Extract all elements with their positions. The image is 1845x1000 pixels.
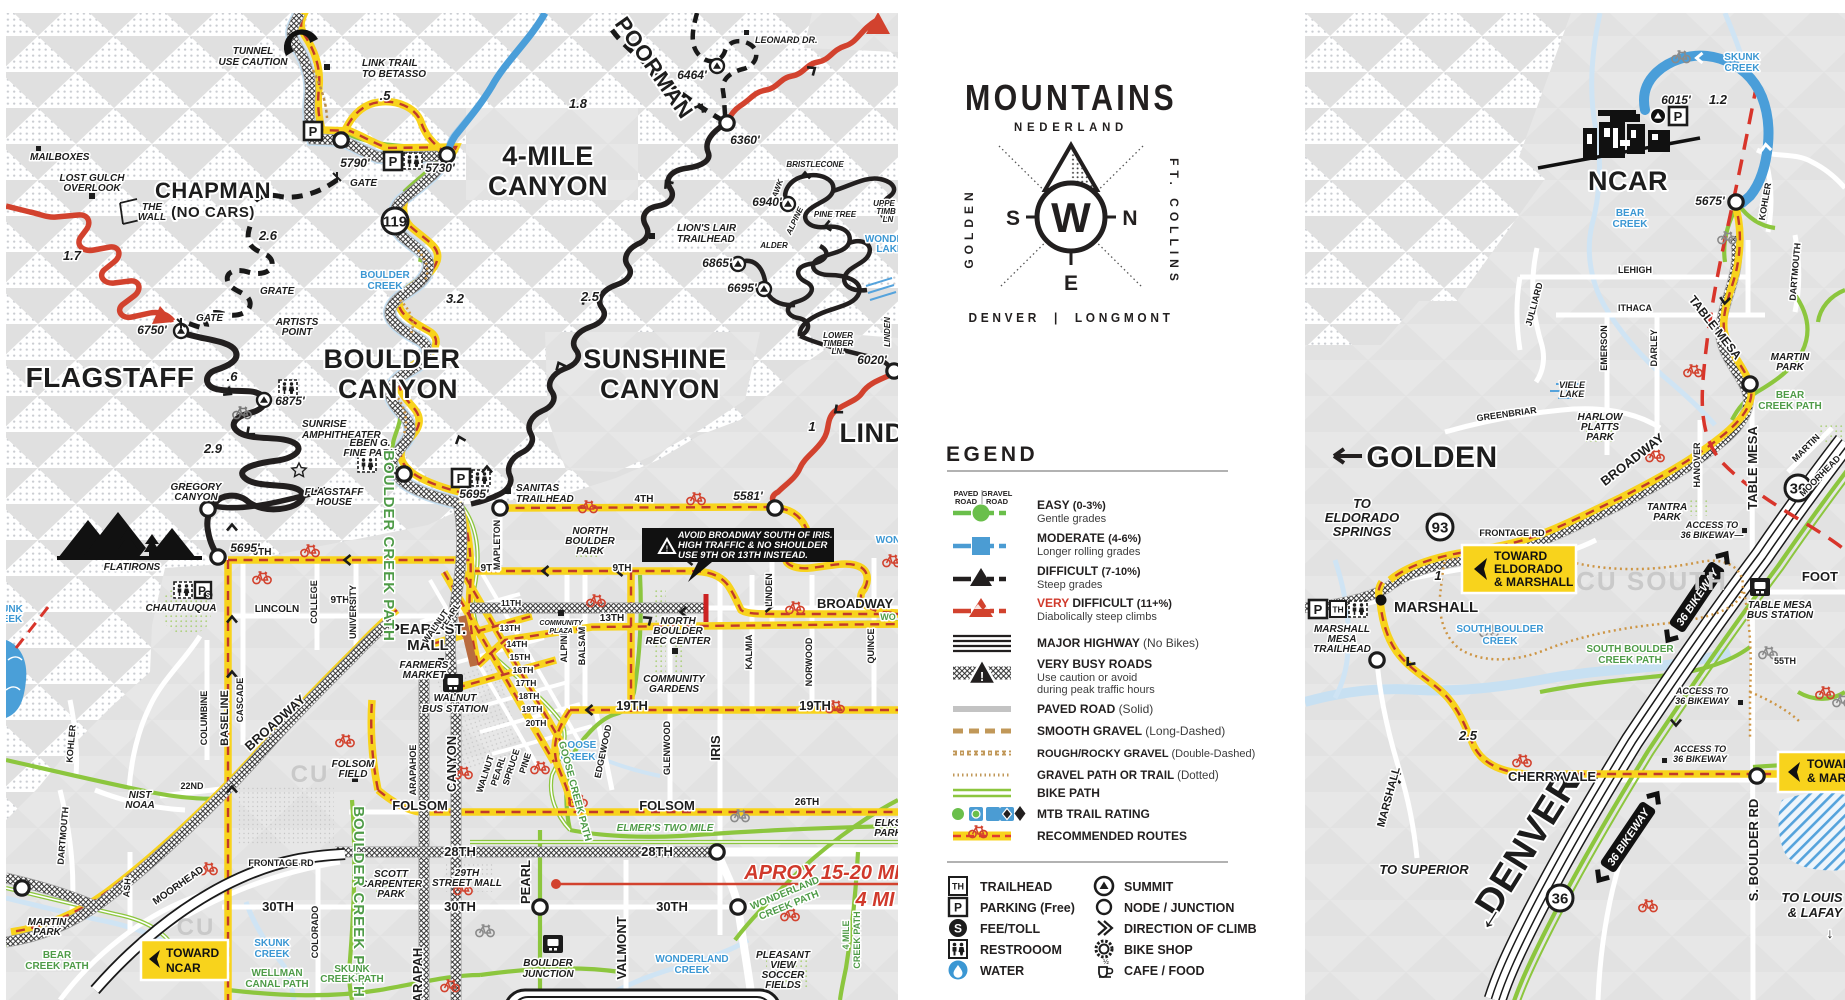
svg-text:PARK: PARK [576, 546, 604, 557]
svg-text:LION'S LAIR: LION'S LAIR [677, 223, 737, 234]
svg-text:N: N [1122, 207, 1137, 230]
svg-text:9TH: 9TH [331, 595, 350, 606]
svg-text:19TH: 19TH [799, 698, 831, 713]
svg-text:ELMER'S TWO MILE: ELMER'S TWO MILE [617, 823, 714, 834]
svg-text:FLATIRONS: FLATIRONS [104, 562, 161, 573]
svg-text:CREEK PATH: CREEK PATH [320, 974, 384, 985]
svg-text:VERY BUSY ROADS: VERY BUSY ROADS [1037, 657, 1152, 671]
svg-text:26TH: 26TH [795, 797, 819, 808]
svg-text:TRAILHEAD: TRAILHEAD [1313, 644, 1371, 655]
svg-text:28TH: 28TH [444, 844, 476, 859]
svg-text:MOUNTAINS: MOUNTAINS [965, 77, 1177, 118]
svg-text:ELDORADO: ELDORADO [1494, 562, 1563, 576]
svg-text:WALNUT: WALNUT [434, 693, 478, 704]
svg-text:SOUTH BOULDER: SOUTH BOULDER [1456, 624, 1544, 635]
svg-text:BEAR: BEAR [1776, 390, 1805, 401]
svg-text:SMOOTH GRAVEL (Long-Dashed): SMOOTH GRAVEL (Long-Dashed) [1037, 724, 1225, 738]
svg-text:14TH: 14TH [507, 639, 528, 649]
svg-text:LEONARD DR.: LEONARD DR. [755, 35, 818, 45]
svg-text:SUMMIT: SUMMIT [1124, 880, 1174, 894]
svg-text:POINT: POINT [282, 327, 313, 338]
svg-text:6865': 6865' [702, 256, 733, 270]
svg-text:↓: ↓ [1827, 925, 1834, 941]
svg-text:Longer rolling grades: Longer rolling grades [1037, 546, 1141, 558]
svg-text:LN.: LN. [832, 347, 845, 356]
svg-text:ITHACA: ITHACA [1618, 303, 1652, 313]
svg-text:& LAFAY: & LAFAY [1788, 905, 1844, 920]
svg-text:½: ½ [1103, 958, 1109, 966]
svg-text:GRAVEL PATH OR TRAIL (Dotted): GRAVEL PATH OR TRAIL (Dotted) [1037, 770, 1219, 782]
svg-text:MTB TRAIL RATING: MTB TRAIL RATING [1037, 807, 1150, 821]
svg-text:5695': 5695' [230, 541, 261, 555]
svg-text:5790': 5790' [340, 156, 371, 170]
svg-text:3.2: 3.2 [446, 291, 465, 306]
svg-text:36: 36 [1552, 891, 1569, 908]
svg-text:TO BETASSO: TO BETASSO [362, 69, 426, 80]
svg-text:TOWARD: TOWARD [166, 946, 219, 960]
svg-text:6360': 6360' [730, 133, 761, 147]
svg-text:ASH: ASH [121, 878, 133, 898]
svg-text:SOUTH BOULDER: SOUTH BOULDER [1586, 644, 1674, 655]
svg-text:FRONTAGE RD: FRONTAGE RD [1479, 528, 1545, 538]
svg-text:Gentle grades: Gentle grades [1037, 513, 1107, 525]
svg-text:PLAZA: PLAZA [549, 628, 572, 635]
svg-text:WONDERLAND: WONDERLAND [655, 954, 728, 965]
svg-text:36 BIKEWAY: 36 BIKEWAY [1675, 696, 1730, 706]
svg-text:CANYON: CANYON [338, 374, 458, 404]
svg-text:MAJOR HIGHWAY (No Bikes): MAJOR HIGHWAY (No Bikes) [1037, 636, 1199, 650]
svg-text:BOULDER: BOULDER [324, 344, 461, 374]
svg-text:BOULDER: BOULDER [360, 270, 410, 281]
svg-text:13TH: 13TH [600, 613, 624, 624]
svg-text:MARSHALL: MARSHALL [1394, 599, 1478, 616]
svg-text:CASCADE: CASCADE [235, 678, 245, 723]
svg-text:FOLSOM: FOLSOM [639, 798, 695, 813]
svg-text:4TH: 4TH [635, 494, 654, 505]
svg-text:16TH: 16TH [513, 665, 534, 675]
svg-text:6020': 6020' [857, 353, 888, 367]
svg-text:LINCOLN: LINCOLN [255, 604, 299, 615]
svg-text:VALMONT: VALMONT [614, 916, 629, 979]
svg-text:IRIS: IRIS [708, 735, 723, 761]
svg-text:QUINCE: QUINCE [866, 628, 876, 663]
svg-text:BOULDER CREEK PATH: BOULDER CREEK PATH [380, 450, 397, 642]
svg-text:PARKING (Free): PARKING (Free) [980, 901, 1075, 915]
svg-text:APROX 15-20 MI: APROX 15-20 MI [743, 862, 900, 884]
svg-text:(NO CARS): (NO CARS) [171, 204, 255, 221]
svg-text:GRATE: GRATE [260, 286, 295, 297]
svg-text:PARK: PARK [377, 889, 405, 900]
svg-text:FIELD: FIELD [339, 769, 368, 780]
svg-text:NCAR: NCAR [166, 961, 201, 975]
svg-text:ELDORADO: ELDORADO [1325, 510, 1399, 525]
svg-text:5730': 5730' [425, 161, 456, 175]
svg-text:GLENWOOD: GLENWOOD [662, 721, 672, 775]
svg-text:PARK: PARK [1653, 512, 1681, 523]
svg-text:REC CENTER: REC CENTER [645, 636, 711, 647]
svg-text:1.2: 1.2 [1709, 92, 1728, 107]
svg-text:36 BIKEWAY: 36 BIKEWAY [1673, 754, 1728, 764]
svg-text:BEAR: BEAR [1616, 208, 1645, 219]
svg-text:TH: TH [952, 882, 964, 892]
svg-text:93: 93 [1432, 520, 1449, 537]
svg-text:15TH: 15TH [510, 652, 531, 662]
svg-text:S. BOULDER RD: S. BOULDER RD [1746, 799, 1761, 902]
svg-text:SKUNK: SKUNK [254, 938, 290, 949]
svg-text:30TH: 30TH [444, 899, 476, 914]
svg-text:WON: WON [876, 535, 900, 546]
svg-text:VERY DIFFICULT (11+%): VERY DIFFICULT (11+%) [1037, 596, 1172, 610]
svg-text:DIFFICULT (7-10%): DIFFICULT (7-10%) [1037, 564, 1141, 578]
svg-text:EASY (0-3%): EASY (0-3%) [1037, 498, 1106, 512]
svg-text:FIELDS: FIELDS [765, 980, 801, 991]
svg-text:TABLE MESA: TABLE MESA [1745, 426, 1760, 510]
svg-text:LINDEN: LINDEN [764, 573, 774, 607]
svg-text:ROUGH/ROCKY GRAVEL (Double-Das: ROUGH/ROCKY GRAVEL (Double-Dashed) [1037, 748, 1255, 760]
svg-text:NEDERLAND: NEDERLAND [1014, 120, 1128, 134]
svg-text:TRAILHEAD: TRAILHEAD [516, 494, 574, 505]
svg-text:CREEK: CREEK [1724, 63, 1760, 74]
svg-text:CHERRYVALE: CHERRYVALE [1508, 769, 1596, 784]
svg-text:2.6: 2.6 [258, 228, 278, 243]
svg-text:4 MI: 4 MI [855, 889, 895, 911]
svg-text:2.9: 2.9 [203, 441, 223, 456]
svg-text:.5: .5 [380, 88, 392, 103]
svg-text:CU: CU [177, 914, 216, 941]
svg-text:Use caution or avoid: Use caution or avoid [1037, 672, 1137, 684]
svg-text:FLAGSTAFF: FLAGSTAFF [26, 362, 195, 393]
svg-text:W: W [1051, 194, 1091, 241]
svg-text:17TH: 17TH [516, 678, 537, 688]
svg-text:NCAR: NCAR [1588, 166, 1668, 196]
svg-text:GOLDEN: GOLDEN [962, 187, 976, 268]
svg-text:LIND: LIND [840, 418, 905, 448]
svg-text:WATER: WATER [980, 964, 1024, 978]
svg-text:WALL: WALL [138, 212, 166, 223]
svg-text:5581': 5581' [733, 489, 764, 503]
svg-text:GATE: GATE [196, 313, 223, 324]
svg-text:SKUNK: SKUNK [1724, 52, 1760, 63]
svg-text:BASELINE: BASELINE [219, 690, 231, 746]
svg-text:E: E [1064, 272, 1078, 295]
svg-text:MAILBOXES: MAILBOXES [30, 152, 90, 163]
svg-text:13TH: 13TH [500, 623, 521, 633]
svg-text:COMMUNITY: COMMUNITY [539, 620, 583, 627]
svg-text:TO LOUIS: TO LOUIS [1781, 890, 1842, 905]
svg-text:20TH: 20TH [526, 718, 547, 728]
svg-text:ARAPAH: ARAPAH [410, 948, 425, 1000]
svg-text:CANYON: CANYON [174, 492, 218, 503]
svg-text:TO: TO [1353, 496, 1371, 511]
svg-text:ALDER: ALDER [759, 241, 788, 250]
svg-text:18TH: 18TH [519, 691, 540, 701]
svg-text:CREEK PATH: CREEK PATH [1758, 401, 1822, 412]
svg-text:STREET MALL: STREET MALL [432, 878, 502, 889]
svg-text:CREEK: CREEK [254, 949, 290, 960]
svg-text:22ND: 22ND [180, 781, 204, 791]
svg-text:Steep grades: Steep grades [1037, 579, 1103, 591]
svg-text:TOWARD: TOWARD [1494, 549, 1547, 563]
svg-text:1: 1 [808, 419, 815, 434]
svg-text:30TH: 30TH [262, 899, 294, 914]
svg-text:GATE: GATE [350, 178, 377, 189]
svg-text:BUS STATION: BUS STATION [1747, 610, 1814, 621]
svg-text:CAFE / FOOD: CAFE / FOOD [1124, 964, 1205, 978]
svg-text:2.5: 2.5 [1458, 728, 1478, 743]
svg-text:BIKE SHOP: BIKE SHOP [1124, 943, 1193, 957]
svg-text:CU SOUTH: CU SOUTH [1576, 566, 1728, 596]
svg-text:FEE/TOLL: FEE/TOLL [980, 922, 1041, 936]
svg-text:MARKET: MARKET [403, 670, 447, 681]
svg-text:SUNSHINE: SUNSHINE [583, 344, 727, 374]
svg-text:CREEK PATH: CREEK PATH [1598, 655, 1662, 666]
svg-text:CHAPMAN: CHAPMAN [155, 178, 271, 203]
svg-text:BEAR: BEAR [43, 950, 72, 961]
svg-text:!: ! [666, 545, 669, 554]
svg-text:1: 1 [1434, 568, 1441, 583]
svg-text:2.5: 2.5 [580, 289, 600, 304]
svg-text:SANITAS: SANITAS [516, 483, 559, 494]
svg-text:GARDENS: GARDENS [649, 684, 699, 695]
svg-text:LN: LN [883, 215, 894, 224]
svg-text:COLLEGE: COLLEGE [309, 580, 319, 624]
svg-text:1.8: 1.8 [569, 96, 588, 111]
svg-text:ACCESS TO: ACCESS TO [1685, 520, 1738, 530]
svg-text:TOWAR: TOWAR [1807, 757, 1845, 771]
svg-text:30TH: 30TH [656, 899, 688, 914]
svg-text:HANOVER: HANOVER [1692, 442, 1702, 488]
svg-text:CREEK PATH: CREEK PATH [25, 961, 89, 972]
svg-text:6015': 6015' [1661, 93, 1692, 107]
svg-text:11TH: 11TH [501, 598, 521, 608]
svg-text:4-MILE: 4-MILE [502, 141, 594, 171]
svg-text:EGEND: EGEND [946, 443, 1038, 466]
svg-text:FOOT: FOOT [1802, 569, 1838, 584]
svg-text:TH: TH [1332, 605, 1343, 615]
svg-text:PARK: PARK [1776, 362, 1804, 373]
svg-text:36 BIKEWAY—: 36 BIKEWAY— [1681, 530, 1745, 540]
svg-text:5675': 5675' [1695, 194, 1726, 208]
svg-text:.6: .6 [227, 369, 239, 384]
svg-text:CREEK: CREEK [674, 965, 710, 976]
svg-text:WO: WO [880, 612, 896, 622]
svg-text:during peak traffic hours: during peak traffic hours [1037, 684, 1155, 696]
svg-text:CHAUTAUQUA: CHAUTAUQUA [146, 603, 217, 614]
svg-text:1.7: 1.7 [63, 248, 82, 263]
svg-text:FOLSOM: FOLSOM [392, 798, 448, 813]
svg-text:CANYON: CANYON [488, 171, 608, 201]
svg-text:PARK: PARK [33, 927, 61, 938]
svg-text:RESTROOOM: RESTROOOM [980, 943, 1062, 957]
svg-text:LEHIGH: LEHIGH [1618, 265, 1652, 275]
svg-text:CANAL PATH: CANAL PATH [245, 979, 308, 990]
svg-text:BROADWAY: BROADWAY [817, 596, 893, 611]
svg-text:119: 119 [383, 214, 407, 231]
svg-text:ACCESS TO: ACCESS TO [1675, 686, 1728, 696]
svg-text:WELLMAN: WELLMAN [251, 968, 302, 979]
svg-text:HOUSE: HOUSE [316, 497, 352, 508]
svg-text:6875': 6875' [275, 394, 306, 408]
svg-text:& MAR: & MAR [1807, 771, 1845, 785]
svg-text:USE CAUTION: USE CAUTION [219, 57, 289, 68]
svg-text:TO SUPERIOR: TO SUPERIOR [1379, 862, 1469, 877]
svg-text:NOAA: NOAA [125, 800, 154, 811]
svg-text:CANYON: CANYON [600, 374, 720, 404]
svg-text:6464': 6464' [677, 68, 708, 82]
svg-text:& MARSHALL: & MARSHALL [1494, 575, 1573, 589]
svg-text:LINK TRAIL: LINK TRAIL [362, 58, 418, 69]
svg-text:Diabolically steep climbs: Diabolically steep climbs [1037, 611, 1157, 623]
svg-text:6750': 6750' [137, 323, 168, 337]
svg-text:MAPLETON: MAPLETON [492, 520, 502, 570]
svg-text:SPRINGS: SPRINGS [1333, 524, 1392, 539]
svg-text:ACCESS TO: ACCESS TO [1673, 744, 1726, 754]
svg-text:COLORADO: COLORADO [310, 906, 320, 959]
svg-text:PINE TREE: PINE TREE [814, 210, 857, 219]
svg-text:JUNCTION: JUNCTION [522, 969, 574, 980]
svg-text:FRONTAGE RD: FRONTAGE RD [248, 858, 314, 868]
svg-text:28TH: 28TH [641, 844, 673, 859]
svg-text:OVERLOOK: OVERLOOK [63, 183, 121, 194]
svg-text:ROAD: ROAD [986, 497, 1009, 506]
svg-text:4 MILE: 4 MILE [841, 920, 851, 949]
svg-text:$: $ [206, 591, 211, 600]
svg-text:SUNRISE: SUNRISE [302, 419, 347, 430]
svg-text:GOLDEN: GOLDEN [1366, 441, 1497, 474]
svg-text:USE 9TH OR 13TH INSTEAD.: USE 9TH OR 13TH INSTEAD. [678, 550, 808, 561]
svg-text:DENVER | LONGMONT: DENVER | LONGMONT [969, 310, 1174, 325]
svg-text:6695': 6695' [727, 281, 758, 295]
svg-text:55TH: 55TH [1774, 656, 1796, 666]
svg-text:BUS STATION: BUS STATION [422, 704, 489, 715]
svg-text:PARK: PARK [1586, 432, 1614, 443]
svg-text:RECOMMENDED ROUTES: RECOMMENDED ROUTES [1037, 829, 1187, 843]
svg-text:MODERATE (4-6%): MODERATE (4-6%) [1037, 531, 1141, 545]
svg-text:CREEK: CREEK [1612, 219, 1648, 230]
svg-text:UNIVERSITY: UNIVERSITY [348, 585, 358, 639]
svg-text:19TH: 19TH [522, 704, 543, 714]
svg-text:CREEK PATH: CREEK PATH [852, 911, 862, 968]
svg-text:CANYON: CANYON [444, 736, 459, 792]
svg-text:EMERSON: EMERSON [1599, 325, 1609, 371]
svg-text:TRAILHEAD: TRAILHEAD [980, 880, 1052, 894]
svg-text:NORWOOD: NORWOOD [804, 637, 814, 686]
svg-text:COLUMBINE: COLUMBINE [199, 691, 209, 746]
svg-text:BIKE PATH: BIKE PATH [1037, 786, 1100, 800]
svg-text:DIRECTION OF CLIMB: DIRECTION OF CLIMB [1124, 922, 1257, 936]
svg-text:CU: CU [291, 761, 330, 788]
svg-text:BRISTLECONE: BRISTLECONE [786, 160, 844, 169]
svg-text:CREEK: CREEK [1482, 636, 1518, 647]
svg-text:FT. COLLINS: FT. COLLINS [1167, 158, 1181, 286]
svg-text:S: S [1006, 207, 1020, 230]
svg-text:!: ! [980, 669, 984, 684]
svg-text:ARAPAHOE: ARAPAHOE [408, 745, 418, 796]
svg-text:BALSAM: BALSAM [577, 627, 587, 666]
svg-text:DARLEY: DARLEY [1649, 329, 1659, 366]
svg-text:KALMIA: KALMIA [744, 634, 754, 669]
svg-text:6940': 6940' [752, 195, 783, 209]
svg-text:TRAILHEAD: TRAILHEAD [677, 234, 735, 245]
svg-text:TUNNEL: TUNNEL [233, 46, 274, 57]
svg-text:CREEK: CREEK [367, 281, 403, 292]
svg-text:ROAD: ROAD [955, 497, 978, 506]
svg-text:LAKE: LAKE [1560, 389, 1585, 399]
svg-text:PAVED ROAD (Solid): PAVED ROAD (Solid) [1037, 702, 1153, 716]
svg-text:9TH: 9TH [613, 563, 632, 574]
svg-text:LINDEN: LINDEN [883, 317, 892, 347]
svg-text:NODE / JUNCTION: NODE / JUNCTION [1124, 901, 1234, 915]
svg-text:S: S [954, 922, 962, 936]
svg-text:19TH: 19TH [616, 698, 648, 713]
svg-text:PEARL: PEARL [518, 860, 533, 904]
svg-text:P: P [954, 901, 962, 915]
svg-text:AVOID BROADWAY SOUTH OF IRIS.: AVOID BROADWAY SOUTH OF IRIS. [677, 530, 833, 540]
svg-text:BOULDER: BOULDER [523, 958, 573, 969]
svg-text:5695': 5695' [459, 487, 490, 501]
